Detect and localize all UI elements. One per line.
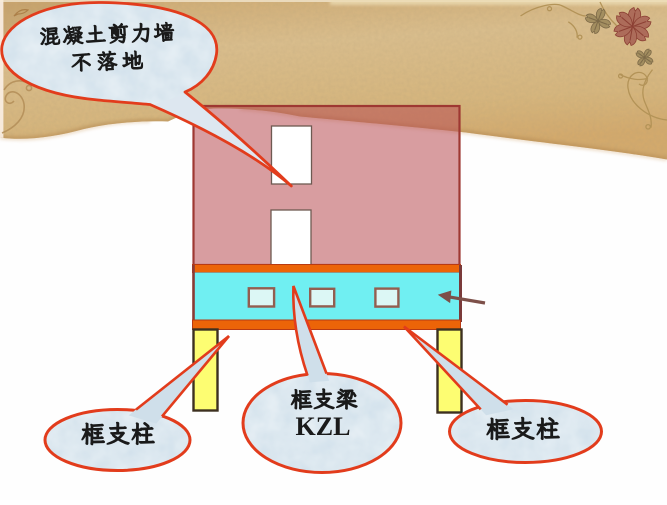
svg-text:KZL: KZL — [296, 412, 351, 441]
